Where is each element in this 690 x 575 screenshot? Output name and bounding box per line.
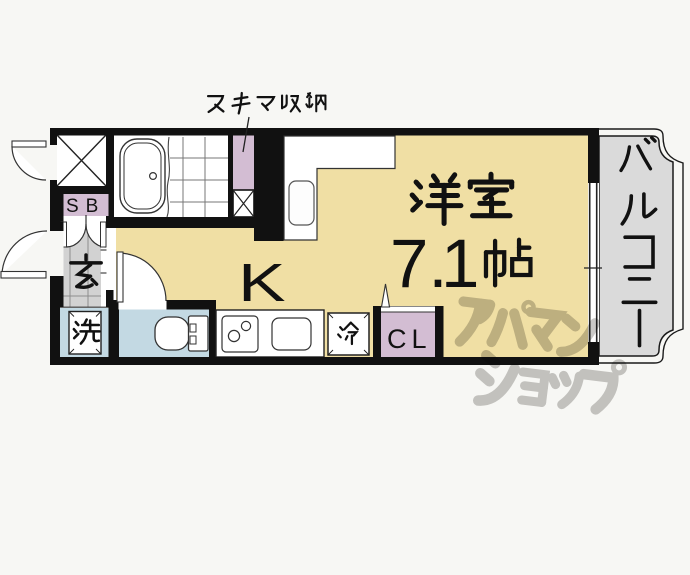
svg-text:1: 1 — [441, 225, 479, 302]
svg-text:CL: CL — [387, 324, 432, 354]
svg-text:K: K — [238, 253, 286, 313]
svg-text:7.: 7. — [390, 225, 448, 302]
svg-text:SB: SB — [66, 196, 105, 217]
